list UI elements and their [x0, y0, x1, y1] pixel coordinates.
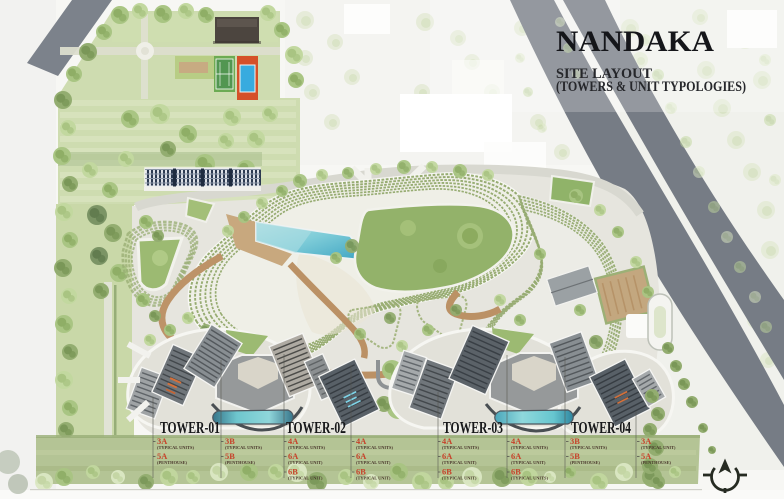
svg-text:(PENTHOUSE): (PENTHOUSE): [157, 460, 188, 465]
svg-text:(TYPICAL UNIT): (TYPICAL UNIT): [641, 445, 676, 450]
svg-text:(TYPICAL UNITS): (TYPICAL UNITS): [288, 445, 325, 450]
svg-text:(PENTHOUSE): (PENTHOUSE): [570, 460, 601, 465]
svg-text:(PENTHOUSE): (PENTHOUSE): [641, 460, 672, 465]
svg-text:(TOWERS & UNIT TYPOLOGIES): (TOWERS & UNIT TYPOLOGIES): [556, 79, 746, 95]
svg-text:(TYPICAL UNIT): (TYPICAL UNIT): [288, 460, 323, 465]
svg-text:(TYPICAL UNIT): (TYPICAL UNIT): [442, 460, 477, 465]
svg-text:(TYPICAL UNITS): (TYPICAL UNITS): [511, 445, 548, 450]
svg-text:(TYPICAL UNIT): (TYPICAL UNIT): [356, 476, 391, 481]
svg-text:TOWER-02: TOWER-02: [286, 418, 346, 437]
svg-text:(TYPICAL UNITS): (TYPICAL UNITS): [511, 476, 548, 481]
svg-text:(TYPICAL UNITS): (TYPICAL UNITS): [225, 445, 262, 450]
svg-text:(TYPICAL UNITS): (TYPICAL UNITS): [356, 445, 393, 450]
svg-text:TOWER-01: TOWER-01: [160, 418, 220, 437]
svg-text:TOWER-04: TOWER-04: [571, 418, 631, 437]
svg-text:(TYPICAL UNITS): (TYPICAL UNITS): [157, 445, 194, 450]
svg-text:(TYPICAL UNIT): (TYPICAL UNIT): [511, 460, 546, 465]
svg-text:TOWER-03: TOWER-03: [443, 418, 503, 437]
svg-text:NANDAKA: NANDAKA: [556, 25, 714, 58]
svg-text:(PENTHOUSE): (PENTHOUSE): [225, 460, 256, 465]
svg-text:(TYPICAL UNITS): (TYPICAL UNITS): [570, 445, 607, 450]
svg-text:(TYPICAL UNIT): (TYPICAL UNIT): [356, 460, 391, 465]
svg-text:(TYPICAL UNITS): (TYPICAL UNITS): [442, 445, 479, 450]
svg-text:(TYPICAL UNIT): (TYPICAL UNIT): [288, 476, 323, 481]
svg-text:(TYPICAL UNIT): (TYPICAL UNIT): [442, 476, 477, 481]
